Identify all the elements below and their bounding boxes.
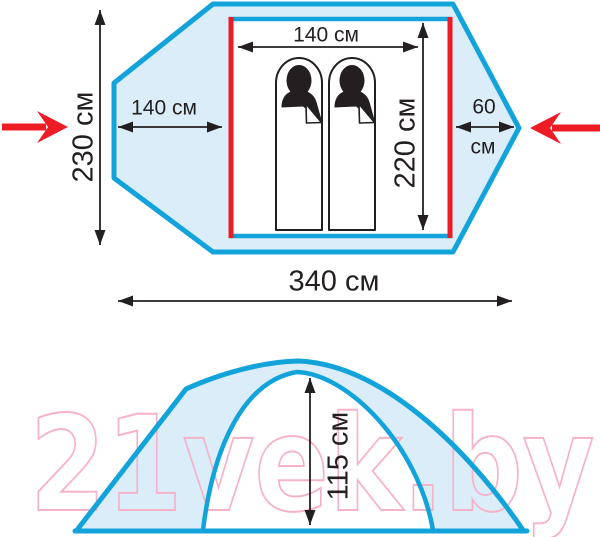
total-length-label: 340 см	[289, 268, 380, 297]
inner-depth-label: 220 см	[392, 98, 421, 189]
entrance-arrow-right-icon	[530, 112, 600, 144]
right-vestibule-value-label: 60	[472, 97, 495, 118]
inner-width-label: 140 см	[293, 25, 359, 46]
tent-dimensions-diagram: 21vek.by 140 см 220 см 140 см 60 см 230 …	[0, 0, 600, 537]
sleeping-bag-right	[329, 58, 375, 230]
sleeping-bag-left	[276, 58, 322, 230]
height-label: 115 см	[325, 412, 354, 501]
tent-side-view: 21vek.by	[30, 361, 595, 537]
right-vestibule-unit-label: см	[471, 137, 496, 158]
left-vestibule-label: 140 см	[131, 98, 197, 119]
entrance-arrow-left-icon	[2, 111, 68, 143]
outer-width-label: 230 см	[70, 92, 99, 183]
